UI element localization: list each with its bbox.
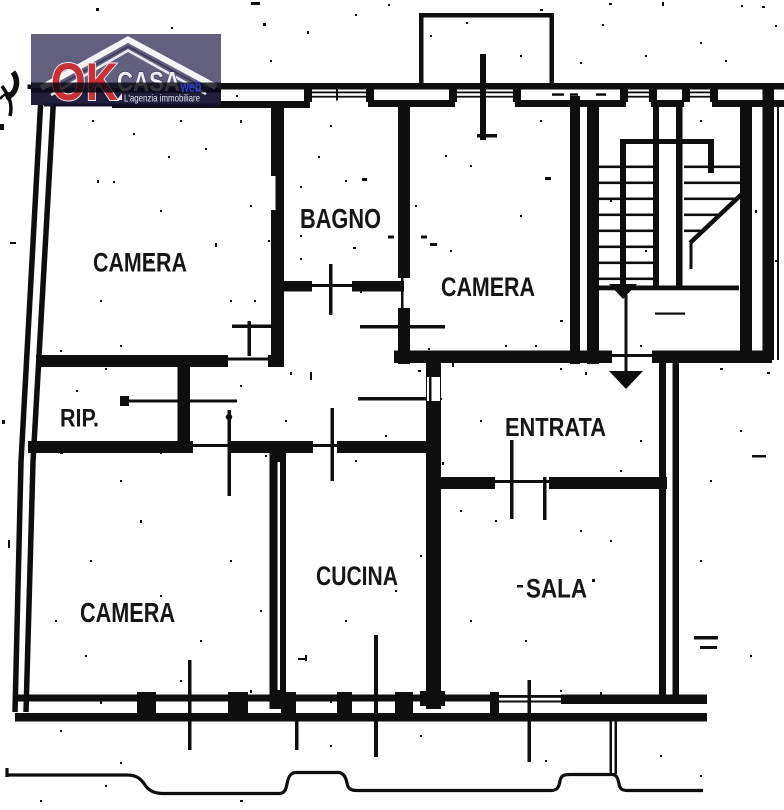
svg-text:BAGNO: BAGNO xyxy=(300,203,381,234)
svg-text:CAMERA: CAMERA xyxy=(441,272,535,302)
svg-text:L'agenzia immobiliare: L'agenzia immobiliare xyxy=(124,93,200,105)
svg-text:CAMERA: CAMERA xyxy=(93,248,187,278)
svg-text:CUCINA: CUCINA xyxy=(316,561,398,591)
svg-text:CAMERA: CAMERA xyxy=(80,597,175,628)
svg-text:RIP.: RIP. xyxy=(60,405,99,433)
svg-text:ENTRATA: ENTRATA xyxy=(505,412,606,442)
svg-text:SALA: SALA xyxy=(526,574,587,604)
